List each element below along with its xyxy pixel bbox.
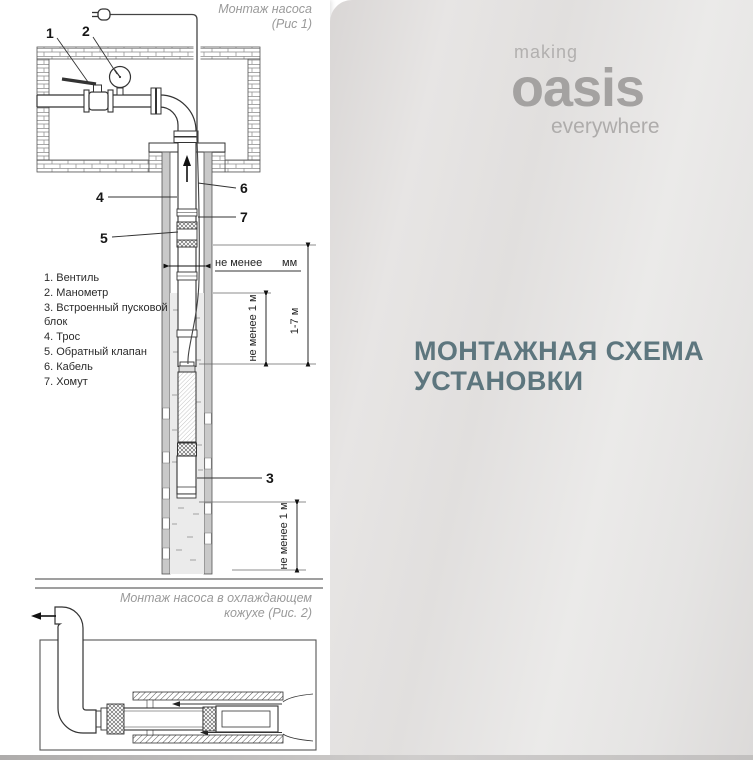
legend: 1. Вентиль 2. Манометр 3. Встроенный пус… (44, 271, 172, 389)
riser-pipe (177, 143, 197, 367)
fig1-caption-line1: Монтаж насоса (218, 2, 312, 17)
plug-icon (92, 9, 110, 20)
fig1-caption: Монтаж насоса (Рис 1) (218, 2, 312, 32)
check-valve (177, 222, 197, 247)
bottom-edge-strip (0, 755, 753, 760)
oasis-logo: making oasis everywhere (511, 42, 660, 139)
dim-min-width-unit: мм (282, 257, 297, 269)
logo-oasis: oasis (511, 63, 660, 113)
brick-pit (37, 47, 260, 172)
page: { "brand": { "making": "making", "oasis"… (0, 0, 753, 760)
dim-bottom-clearance: не менее 1 м (278, 502, 290, 569)
page-title: МОНТАЖНАЯ СХЕМА УСТАНОВКИ (414, 336, 704, 396)
pipe-flange-joint (174, 131, 198, 143)
logo-everywhere: everywhere (551, 115, 660, 139)
fig2-caption: Монтаж насоса в охлаждающем кожухе (Рис.… (120, 591, 312, 621)
submersible-pump (177, 362, 197, 498)
legend-item: 2. Манометр (44, 286, 172, 301)
dim-depth-range: 1-7 м (289, 308, 301, 335)
fig1-caption-line2: (Рис 1) (218, 17, 312, 32)
callout-1: 1 (46, 25, 54, 41)
diagram-panel: не менее мм не менее 1 м 1-7 м не менее … (0, 0, 330, 755)
brand-panel: making oasis everywhere МОНТАЖНАЯ СХЕМА … (330, 0, 753, 760)
page-title-line1: МОНТАЖНАЯ СХЕМА (414, 336, 704, 366)
legend-item: 3. Встроенный пусковой блок (44, 301, 172, 331)
page-title-line2: УСТАНОВКИ (414, 366, 583, 396)
legend-item: 7. Хомут (44, 375, 172, 390)
callout-4: 4 (96, 189, 104, 205)
legend-item: 4. Трос (44, 330, 172, 345)
fig2-caption-line2: кожухе (Рис. 2) (120, 606, 312, 621)
pipe-union (151, 88, 161, 114)
dim-min-width-label: не менее (215, 257, 262, 269)
legend-item: 5. Обратный клапан (44, 345, 172, 360)
callout-2: 2 (82, 23, 90, 39)
callout-7: 7 (240, 209, 248, 225)
fig2-caption-line1: Монтаж насоса в охлаждающем (120, 591, 312, 606)
outflow-arrow (31, 612, 56, 619)
figure-separator (35, 579, 323, 588)
surface-piping (37, 95, 196, 131)
legend-item: 1. Вентиль (44, 271, 172, 286)
pump-in-jacket (96, 704, 278, 734)
callout-6: 6 (240, 180, 248, 196)
legend-item: 6. Кабель (44, 360, 172, 375)
callout-3: 3 (266, 470, 274, 486)
fig2-drawing (31, 607, 316, 750)
callout-5: 5 (100, 230, 108, 246)
dim-submersion: не менее 1 м (247, 294, 259, 361)
